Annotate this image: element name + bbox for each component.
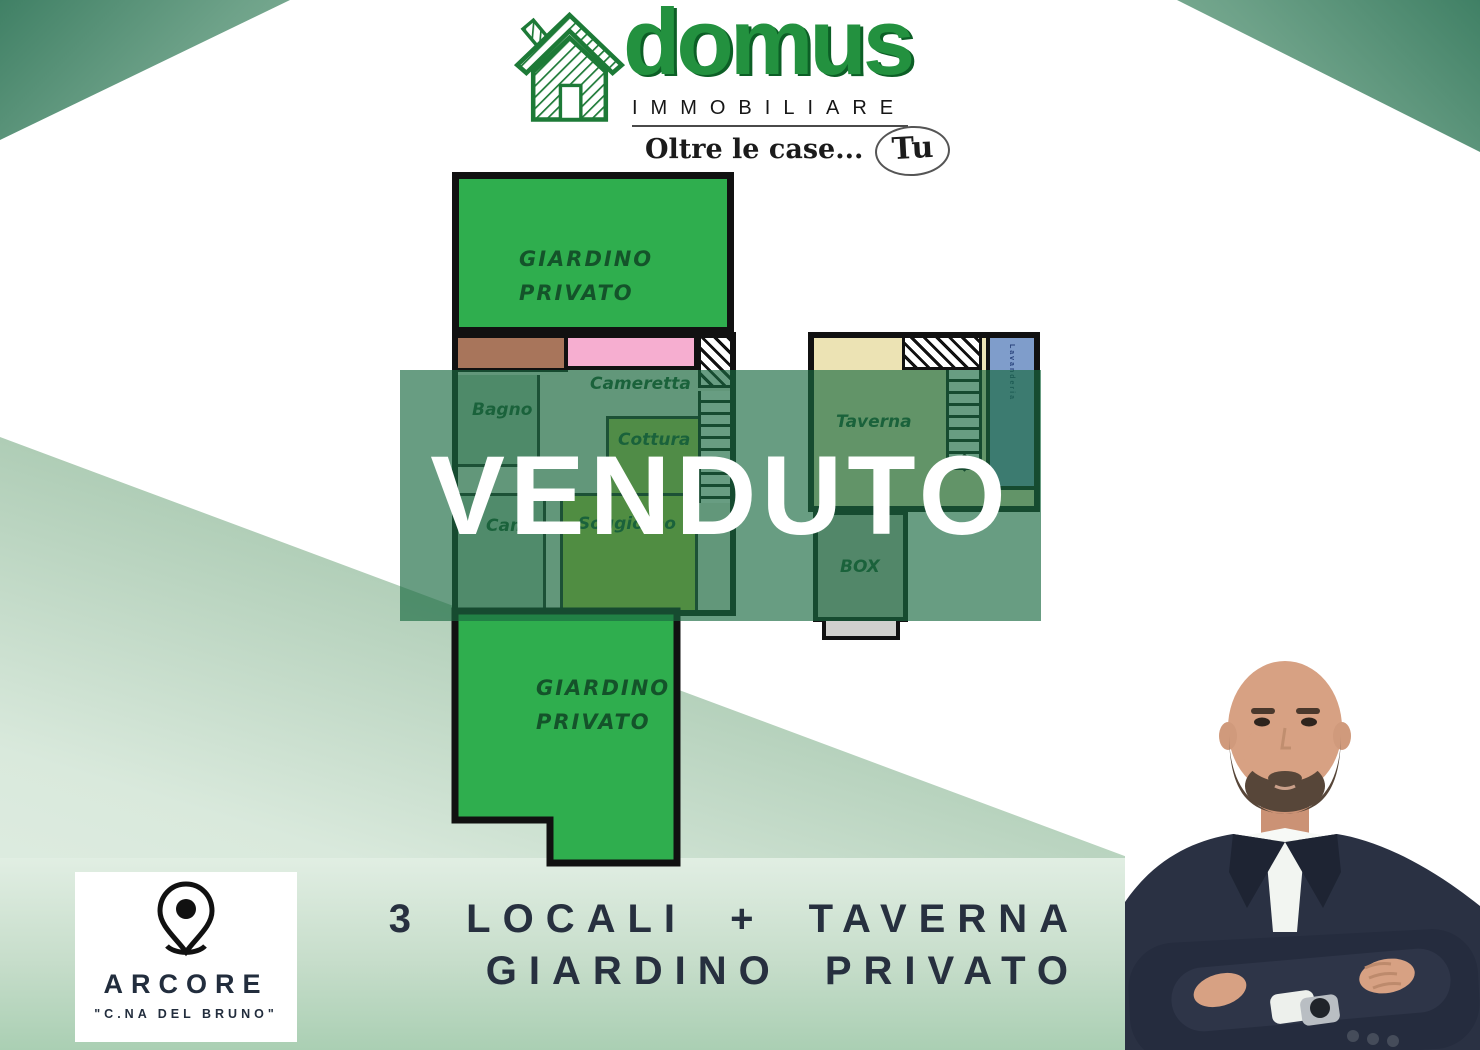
garden-bottom-label-1: GIARDINO	[536, 676, 670, 700]
tagline-highlight: Tu	[874, 124, 952, 178]
agent-photo	[1125, 640, 1480, 1050]
room-cameretta-area	[568, 338, 698, 370]
stairs-icon	[902, 338, 982, 370]
brand-name: domus	[623, 0, 911, 96]
garden-bottom-shape	[448, 604, 684, 870]
location-city: ARCORE	[75, 969, 297, 1000]
brand-subtitle: IMMOBILIARE	[632, 97, 908, 127]
corner-triangle-top-right	[1170, 0, 1480, 160]
brand-tagline: Oltre le case... Tu	[645, 126, 950, 176]
location-district: "C.NA DEL BRUNO"	[75, 1007, 297, 1021]
floorplan-garden-top: GIARDINO PRIVATO	[452, 172, 734, 334]
room-terrace	[458, 338, 568, 372]
real-estate-poster: domus IMMOBILIARE Oltre le case... Tu GI…	[0, 0, 1480, 1050]
brand-logo: domus IMMOBILIARE Oltre le case... Tu	[440, 0, 1020, 178]
agent-portrait	[1125, 640, 1480, 1050]
location-card: ARCORE "C.NA DEL BRUNO"	[75, 872, 297, 1042]
sold-banner: VENDUTO	[400, 370, 1041, 621]
listing-caption: 3 LOCALI + TAVERNA GIARDINO PRIVATO	[340, 893, 1080, 997]
caption-line-1: 3 LOCALI + TAVERNA	[340, 893, 1080, 945]
corner-triangle-top-left	[0, 0, 300, 150]
house-icon	[512, 6, 627, 124]
sold-banner-text: VENDUTO	[430, 431, 1011, 560]
garden-top-label-1: GIARDINO	[519, 247, 653, 271]
floorplan-garden-bottom: GIARDINO PRIVATO	[448, 604, 684, 870]
location-pin-icon	[154, 878, 218, 964]
caption-line-2: GIARDINO PRIVATO	[340, 945, 1080, 997]
garden-top-label-2: PRIVATO	[519, 281, 634, 305]
garden-bottom-label-2: PRIVATO	[536, 710, 651, 734]
tagline-text: Oltre le case...	[645, 134, 863, 165]
